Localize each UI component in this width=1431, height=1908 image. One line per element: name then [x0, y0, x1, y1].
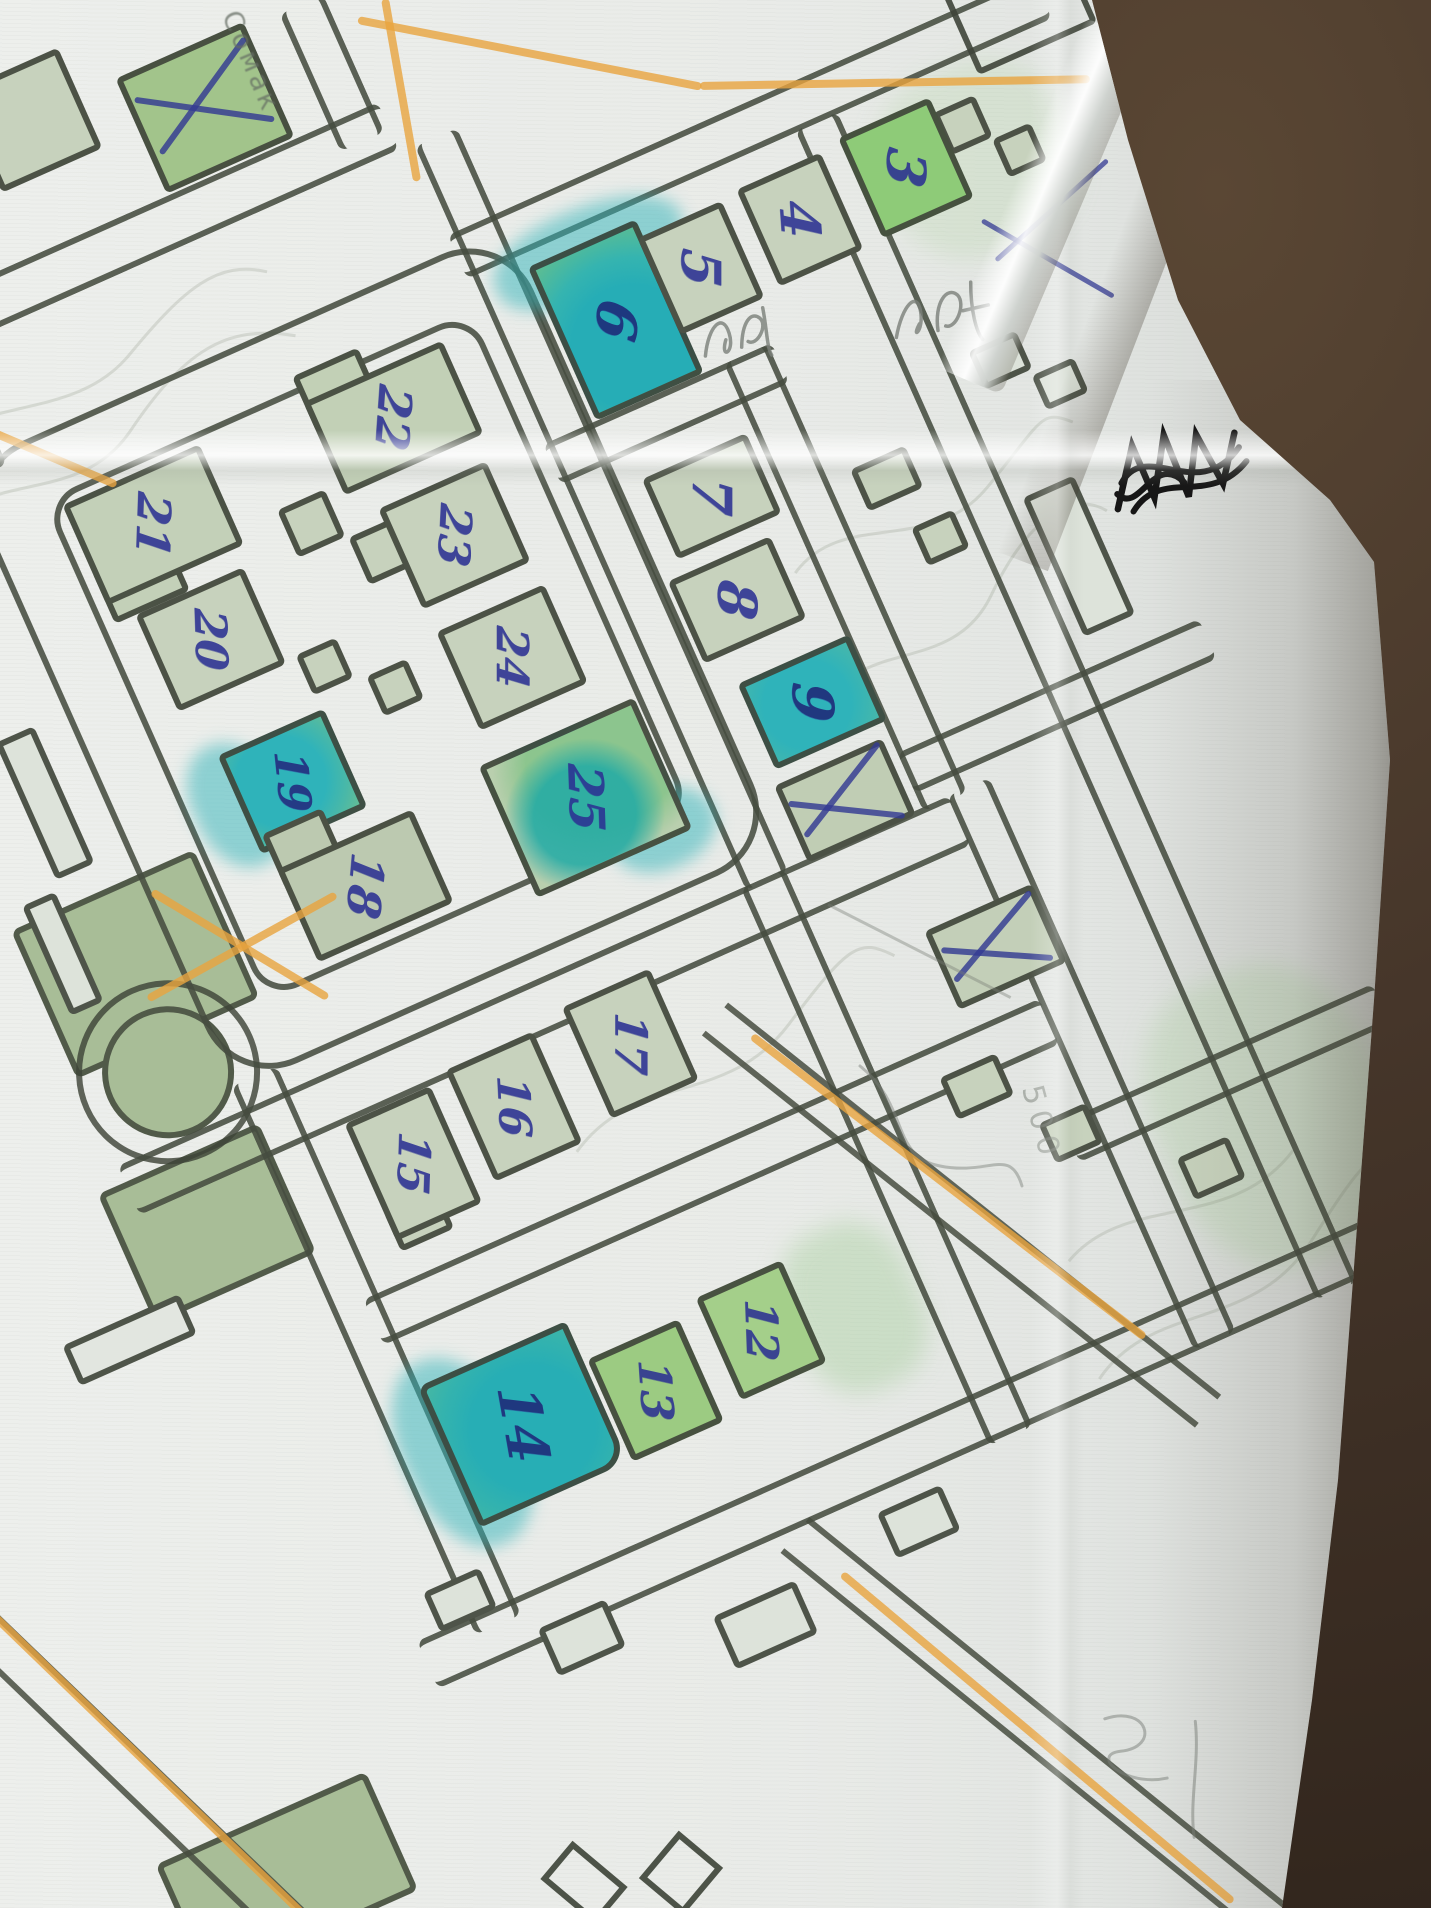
building-number: 20	[162, 583, 260, 696]
building	[62, 1294, 197, 1386]
building-number: 18	[315, 810, 416, 963]
building-number: 25	[517, 714, 655, 881]
printed-map-layer: 21 22 20 23 24 19 18 25	[0, 0, 1431, 1908]
building-number: 15	[354, 1114, 472, 1212]
x-mark	[953, 890, 1033, 983]
building-number: 13	[602, 1345, 709, 1436]
pencil-scribble	[1068, 1686, 1237, 1855]
building	[713, 1580, 819, 1670]
building-number: 12	[710, 1286, 813, 1375]
pencil-scribble	[850, 1046, 1030, 1196]
building-number: 17	[575, 996, 685, 1092]
x-mark	[788, 801, 905, 819]
map-paper-sheet: 21 22 20 23 24 19 18 25	[0, 0, 1431, 1908]
building-number: 14	[439, 1345, 607, 1503]
building-number: 4	[750, 178, 850, 261]
pencil-scribble	[691, 287, 794, 375]
building-number: 21	[102, 449, 204, 601]
building-number: 16	[456, 1062, 571, 1152]
building-number: 9	[769, 644, 855, 760]
building-number: 22	[344, 340, 443, 495]
building-number: 24	[464, 599, 560, 715]
building	[877, 1485, 961, 1559]
building-number: 3	[855, 116, 957, 219]
building-number: 23	[403, 475, 506, 596]
x-mark	[941, 947, 1054, 961]
building-number: 7	[674, 441, 750, 551]
photo-of-paper-map: 21 22 20 23 24 19 18 25	[0, 0, 1431, 1908]
building	[0, 48, 102, 193]
building-number: 8	[697, 545, 778, 656]
